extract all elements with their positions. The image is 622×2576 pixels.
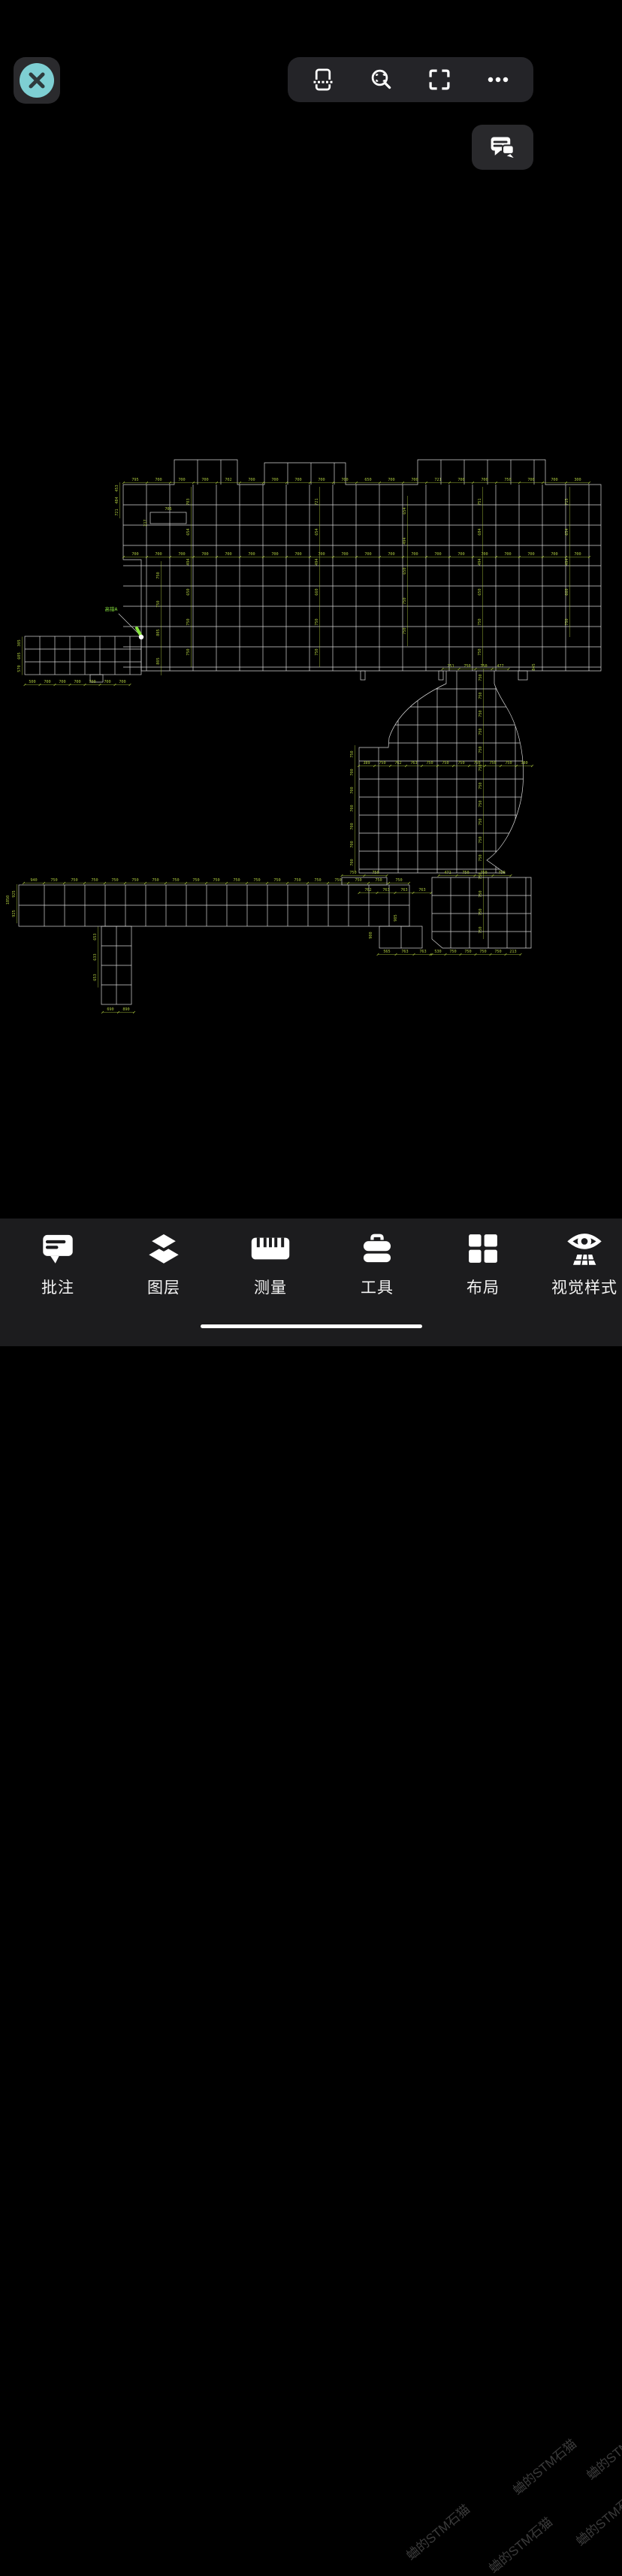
svg-text:700: 700 xyxy=(131,552,138,557)
svg-text:900: 900 xyxy=(369,932,373,938)
svg-text:750: 750 xyxy=(462,871,469,875)
svg-text:750: 750 xyxy=(463,664,470,669)
svg-text:650: 650 xyxy=(478,588,482,595)
svg-text:795: 795 xyxy=(131,478,138,482)
svg-text:700: 700 xyxy=(527,552,534,557)
svg-text:653: 653 xyxy=(93,974,98,980)
svg-text:380: 380 xyxy=(521,761,527,766)
svg-text:750: 750 xyxy=(314,878,321,883)
svg-text:217: 217 xyxy=(143,519,148,526)
nav-measure[interactable]: 测量 xyxy=(225,1229,316,1298)
svg-text:700: 700 xyxy=(341,478,348,482)
svg-text:700: 700 xyxy=(225,552,231,557)
cad-drawing-canvas[interactable]: 7957007007007027007007007007006507007007… xyxy=(0,0,622,1346)
svg-text:750: 750 xyxy=(379,761,385,766)
svg-text:654: 654 xyxy=(403,507,407,514)
zoom-window-button[interactable] xyxy=(361,59,402,100)
svg-text:690: 690 xyxy=(107,1007,113,1012)
svg-text:750: 750 xyxy=(504,478,511,482)
svg-text:750: 750 xyxy=(494,950,501,954)
nav-measure-label: 测量 xyxy=(225,1276,316,1298)
svg-text:565: 565 xyxy=(383,950,390,954)
svg-text:750: 750 xyxy=(403,597,407,604)
comments-icon xyxy=(490,135,515,159)
svg-text:389: 389 xyxy=(363,761,370,766)
home-indicator[interactable] xyxy=(201,1324,422,1328)
svg-text:750: 750 xyxy=(479,854,483,861)
svg-text:750: 750 xyxy=(479,782,483,789)
svg-text:700: 700 xyxy=(411,552,418,557)
svg-text:763: 763 xyxy=(410,761,417,766)
svg-text:700: 700 xyxy=(457,478,464,482)
svg-text:633: 633 xyxy=(93,953,98,960)
svg-text:702: 702 xyxy=(225,478,231,482)
svg-text:570: 570 xyxy=(17,665,22,672)
svg-text:750: 750 xyxy=(273,878,280,883)
svg-text:805: 805 xyxy=(156,657,161,664)
svg-text:750: 750 xyxy=(315,618,319,625)
svg-text:750: 750 xyxy=(480,871,487,875)
nav-annotate-label: 批注 xyxy=(13,1276,103,1298)
svg-text:750: 750 xyxy=(478,648,482,655)
svg-text:700: 700 xyxy=(341,552,348,557)
svg-text:890: 890 xyxy=(122,1007,129,1012)
slice-view-button[interactable] xyxy=(303,59,343,100)
svg-text:750: 750 xyxy=(565,618,569,625)
svg-text:905: 905 xyxy=(394,914,398,921)
fit-extents-button[interactable] xyxy=(419,59,460,100)
svg-text:750: 750 xyxy=(186,618,191,625)
svg-text:484: 484 xyxy=(115,497,119,503)
watermark: 蛐的STM石猫 xyxy=(401,2499,473,2564)
svg-text:750: 750 xyxy=(473,761,480,766)
svg-text:750: 750 xyxy=(479,836,483,843)
svg-text:750: 750 xyxy=(172,878,179,883)
svg-text:750: 750 xyxy=(498,871,505,875)
nav-layers[interactable]: 图层 xyxy=(119,1229,209,1298)
svg-text:721: 721 xyxy=(315,498,319,505)
annotate-icon xyxy=(13,1229,103,1268)
svg-text:494: 494 xyxy=(315,558,319,565)
svg-text:750: 750 xyxy=(479,674,483,681)
svg-text:762: 762 xyxy=(394,761,401,766)
svg-text:750: 750 xyxy=(479,692,483,699)
svg-text:453: 453 xyxy=(115,485,119,491)
svg-text:750: 750 xyxy=(350,750,355,757)
svg-text:940: 940 xyxy=(30,878,37,883)
measure-icon xyxy=(225,1229,316,1268)
svg-text:700: 700 xyxy=(155,552,162,557)
svg-text:700: 700 xyxy=(574,552,581,557)
svg-text:750: 750 xyxy=(505,761,512,766)
svg-text:750: 750 xyxy=(489,761,496,766)
svg-text:700: 700 xyxy=(271,552,278,557)
svg-text:700: 700 xyxy=(248,552,255,557)
nav-tools[interactable]: 工具 xyxy=(332,1229,422,1298)
svg-text:700: 700 xyxy=(504,552,511,557)
svg-text:494: 494 xyxy=(565,558,569,565)
svg-text:700: 700 xyxy=(457,552,464,557)
svg-text:750: 750 xyxy=(294,878,300,883)
svg-text:700: 700 xyxy=(59,680,65,684)
svg-text:750: 750 xyxy=(355,878,361,883)
svg-text:305: 305 xyxy=(17,639,22,646)
svg-text:750: 750 xyxy=(479,746,483,753)
svg-text:750: 750 xyxy=(50,878,57,883)
svg-text:750: 750 xyxy=(480,664,487,669)
svg-text:700: 700 xyxy=(74,680,80,684)
svg-text:700: 700 xyxy=(551,478,557,482)
svg-text:750: 750 xyxy=(315,648,319,655)
slice-view-icon xyxy=(312,68,334,91)
svg-text:700: 700 xyxy=(178,478,185,482)
svg-text:700: 700 xyxy=(350,859,355,865)
svg-text:700: 700 xyxy=(551,552,557,557)
svg-text:700: 700 xyxy=(155,478,162,482)
svg-text:477: 477 xyxy=(497,664,503,669)
svg-text:700: 700 xyxy=(364,552,371,557)
svg-text:700: 700 xyxy=(294,552,301,557)
svg-text:750: 750 xyxy=(479,710,483,717)
svg-text:763: 763 xyxy=(419,950,426,954)
svg-text:700: 700 xyxy=(527,478,534,482)
svg-text:213: 213 xyxy=(509,950,516,954)
svg-text:750: 750 xyxy=(478,618,482,625)
svg-text:763: 763 xyxy=(382,888,389,892)
watermark: 蛐的STM石猫 xyxy=(508,2434,580,2499)
layout-icon xyxy=(438,1229,528,1268)
nav-visual-style[interactable]: 视觉样式 xyxy=(545,1229,622,1298)
svg-text:750: 750 xyxy=(91,878,98,883)
svg-text:750: 750 xyxy=(479,800,483,807)
svg-text:703: 703 xyxy=(186,498,191,505)
svg-text:300: 300 xyxy=(574,478,581,482)
svg-text:700: 700 xyxy=(388,478,394,482)
svg-text:750: 750 xyxy=(442,761,448,766)
svg-text:721: 721 xyxy=(115,509,119,515)
nav-visual-style-label: 视觉样式 xyxy=(545,1276,622,1298)
svg-text:700: 700 xyxy=(178,552,185,557)
svg-text:750: 750 xyxy=(71,878,77,883)
svg-text:750: 750 xyxy=(349,871,356,875)
svg-text:700: 700 xyxy=(89,680,95,684)
comments-button[interactable] xyxy=(472,125,533,170)
svg-text:700: 700 xyxy=(350,805,355,811)
nav-tools-label: 工具 xyxy=(332,1276,422,1298)
tools-icon xyxy=(332,1229,422,1268)
zoom-window-icon xyxy=(370,68,393,91)
svg-text:471: 471 xyxy=(444,871,451,875)
nav-layout-label: 布局 xyxy=(438,1276,528,1298)
watermark: 蛐的STM石猫 xyxy=(581,2419,622,2484)
svg-text:494: 494 xyxy=(186,558,191,565)
svg-text:500: 500 xyxy=(29,680,35,684)
svg-text:750: 750 xyxy=(457,761,464,766)
svg-text:750: 750 xyxy=(213,878,219,883)
svg-text:750: 750 xyxy=(464,950,471,954)
svg-text:750: 750 xyxy=(372,871,379,875)
svg-text:650: 650 xyxy=(364,478,371,482)
svg-text:654: 654 xyxy=(565,528,569,535)
svg-text:700: 700 xyxy=(481,552,488,557)
svg-text:805: 805 xyxy=(156,629,161,636)
svg-text:750: 750 xyxy=(111,878,118,883)
visual-style-icon xyxy=(545,1229,622,1268)
layers-icon xyxy=(119,1229,209,1268)
fit-extents-icon xyxy=(428,68,451,91)
svg-text:660: 660 xyxy=(315,588,319,595)
svg-text:700: 700 xyxy=(248,478,255,482)
cad-viewer-app: { "app": {"background": "#000000", "ui_p… xyxy=(0,0,622,1346)
svg-text:750: 750 xyxy=(479,890,483,897)
svg-text:653: 653 xyxy=(93,933,98,940)
svg-text:700: 700 xyxy=(119,680,125,684)
close-button[interactable] xyxy=(14,57,60,104)
svg-text:700: 700 xyxy=(201,478,208,482)
svg-text:925: 925 xyxy=(12,910,17,917)
svg-text:700: 700 xyxy=(388,552,394,557)
nav-annotate[interactable]: 批注 xyxy=(13,1229,103,1298)
svg-text:751: 751 xyxy=(447,664,454,669)
close-circle xyxy=(20,63,54,98)
svg-text:750: 750 xyxy=(449,950,456,954)
svg-text:650: 650 xyxy=(186,588,191,595)
svg-text:750: 750 xyxy=(375,878,382,883)
svg-text:750: 750 xyxy=(479,728,483,735)
more-icon xyxy=(487,68,509,91)
svg-text:750: 750 xyxy=(156,572,161,578)
svg-text:654: 654 xyxy=(315,528,319,535)
svg-text:750: 750 xyxy=(131,878,138,883)
svg-text:750: 750 xyxy=(334,878,341,883)
svg-text:750: 750 xyxy=(426,761,433,766)
svg-text:750: 750 xyxy=(403,627,407,634)
svg-text:700: 700 xyxy=(201,552,208,557)
svg-text:751: 751 xyxy=(478,498,482,505)
svg-text:750: 750 xyxy=(479,908,483,915)
svg-text:750: 750 xyxy=(479,818,483,825)
svg-text:654: 654 xyxy=(186,528,191,535)
svg-text:700: 700 xyxy=(350,841,355,847)
viewer-toolbar xyxy=(288,57,533,102)
svg-text:763: 763 xyxy=(400,888,407,892)
svg-text:700: 700 xyxy=(104,680,110,684)
nav-layers-label: 图层 xyxy=(119,1276,209,1298)
svg-text:494: 494 xyxy=(403,537,407,544)
svg-text:660: 660 xyxy=(565,588,569,595)
svg-text:750: 750 xyxy=(233,878,240,883)
svg-text:700: 700 xyxy=(44,680,50,684)
svg-text:750: 750 xyxy=(479,950,486,954)
svg-text:925: 925 xyxy=(12,890,17,897)
watermark: 蛐的STM石猫 xyxy=(571,2485,622,2550)
svg-text:750: 750 xyxy=(479,926,483,933)
svg-text:700: 700 xyxy=(350,823,355,829)
watermark: 蛐的STM石猫 xyxy=(484,2512,556,2576)
svg-text:684: 684 xyxy=(478,528,482,535)
svg-text:605: 605 xyxy=(17,652,22,659)
svg-text:高错A: 高错A xyxy=(105,605,118,612)
svg-text:763: 763 xyxy=(401,950,408,954)
svg-text:700: 700 xyxy=(294,478,301,482)
svg-text:750: 750 xyxy=(192,878,199,883)
svg-text:700: 700 xyxy=(350,787,355,793)
svg-text:750: 750 xyxy=(156,600,161,607)
svg-text:700: 700 xyxy=(318,478,325,482)
svg-text:750: 750 xyxy=(152,878,159,883)
svg-text:700: 700 xyxy=(350,769,355,775)
svg-text:845: 845 xyxy=(532,663,536,670)
svg-text:706: 706 xyxy=(165,507,171,512)
svg-text:700: 700 xyxy=(434,552,441,557)
svg-text:762: 762 xyxy=(364,888,371,892)
svg-text:763: 763 xyxy=(418,888,425,892)
svg-text:530: 530 xyxy=(434,950,441,954)
svg-text:750: 750 xyxy=(253,878,260,883)
nav-layout[interactable]: 布局 xyxy=(438,1229,528,1298)
svg-text:700: 700 xyxy=(318,552,325,557)
svg-text:700: 700 xyxy=(271,478,278,482)
svg-text:1850: 1850 xyxy=(6,895,11,905)
svg-text:750: 750 xyxy=(186,648,191,655)
svg-text:700: 700 xyxy=(481,478,488,482)
more-button[interactable] xyxy=(478,59,518,100)
close-x-icon xyxy=(27,71,47,90)
svg-text:700: 700 xyxy=(411,478,418,482)
svg-text:721: 721 xyxy=(434,478,441,482)
svg-text:650: 650 xyxy=(403,567,407,574)
svg-text:715: 715 xyxy=(565,498,569,505)
svg-text:494: 494 xyxy=(478,558,482,565)
svg-text:750: 750 xyxy=(395,878,402,883)
